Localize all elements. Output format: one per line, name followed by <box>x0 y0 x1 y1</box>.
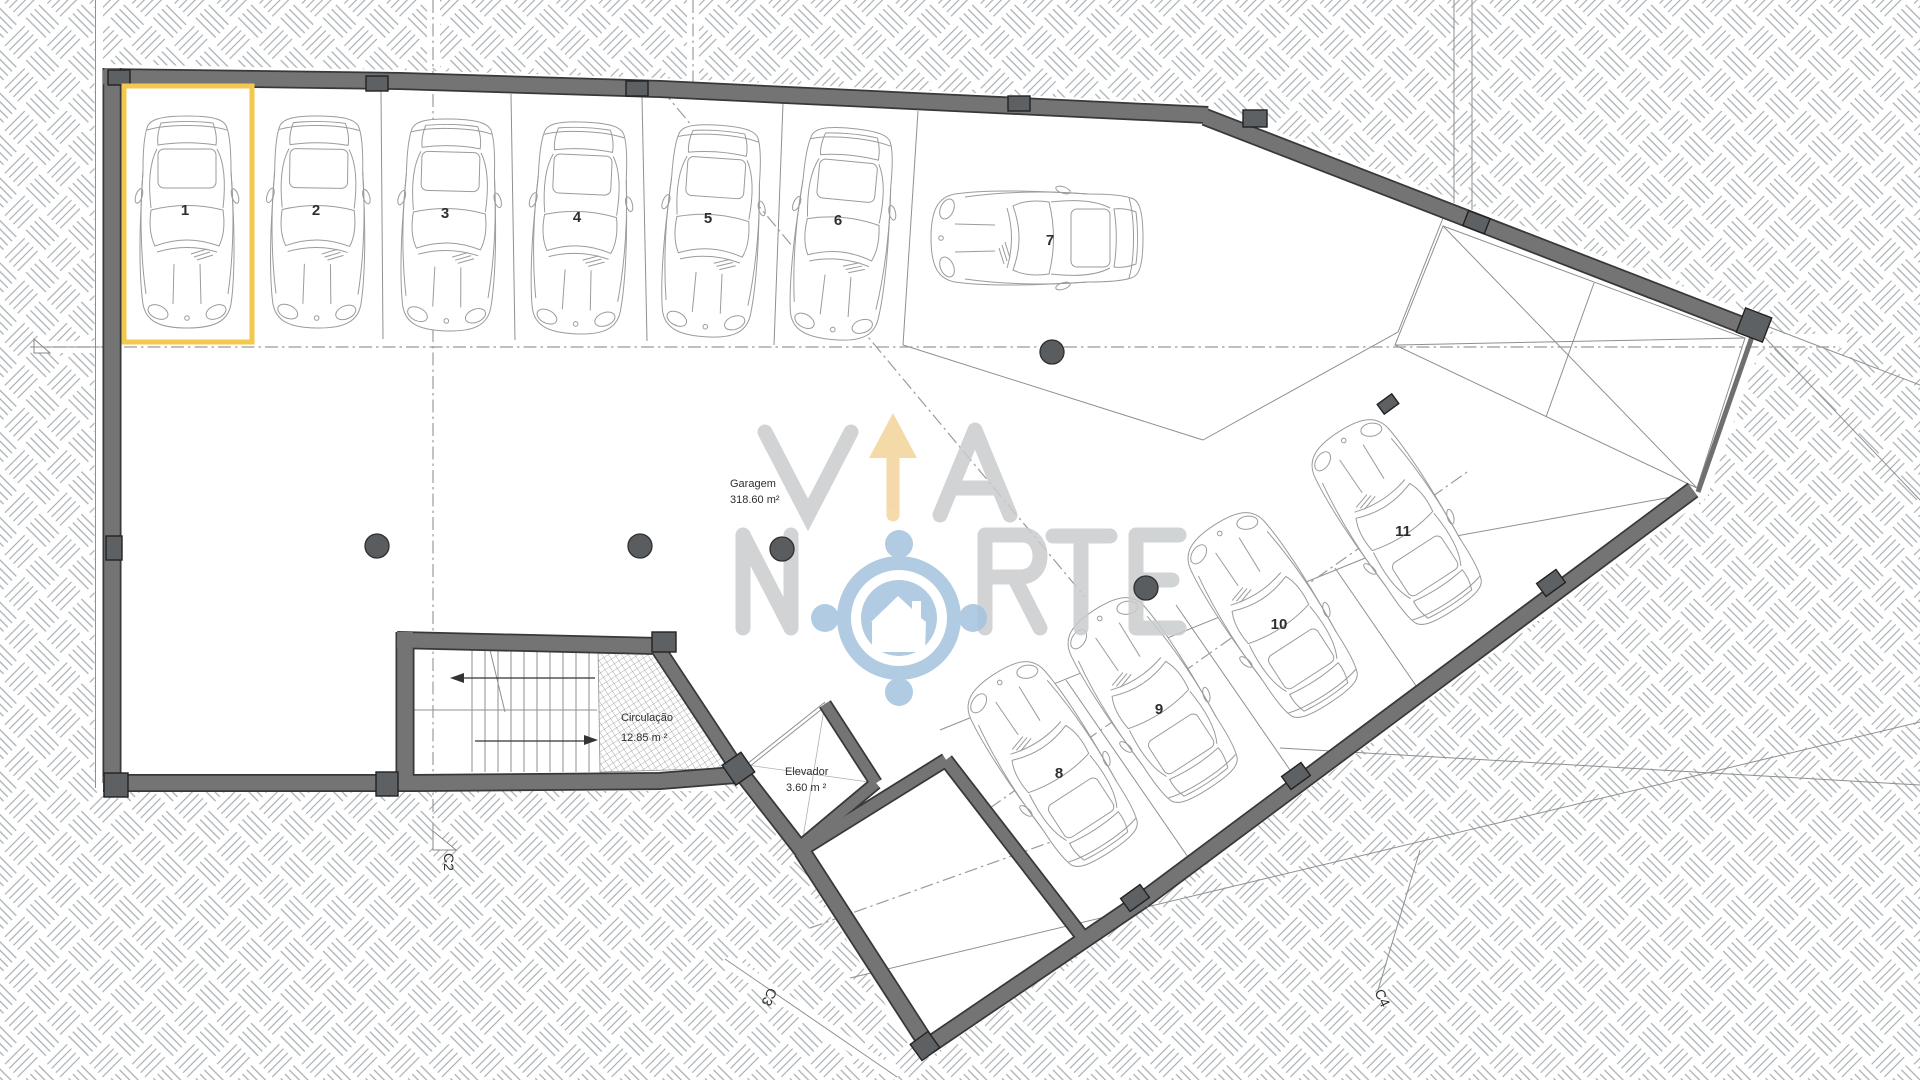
svg-text:10: 10 <box>1271 616 1288 633</box>
svg-text:Garagem: Garagem <box>730 478 776 490</box>
svg-text:8: 8 <box>1055 765 1063 782</box>
svg-text:7: 7 <box>1046 232 1054 249</box>
svg-text:318.60 m²: 318.60 m² <box>730 494 780 506</box>
svg-text:3: 3 <box>441 205 449 222</box>
svg-text:Elevador: Elevador <box>785 766 829 778</box>
svg-text:4: 4 <box>573 209 582 226</box>
svg-text:12.85 m ²: 12.85 m ² <box>621 732 668 744</box>
svg-text:6: 6 <box>834 212 842 229</box>
svg-text:5: 5 <box>704 210 712 227</box>
svg-text:Circulação: Circulação <box>621 712 673 724</box>
svg-text:1: 1 <box>181 202 189 219</box>
svg-text:2: 2 <box>312 202 320 219</box>
svg-text:11: 11 <box>1395 523 1411 540</box>
svg-text:9: 9 <box>1155 701 1163 718</box>
svg-text:3.60 m ²: 3.60 m ² <box>786 782 827 794</box>
svg-text:C2: C2 <box>441 853 457 871</box>
